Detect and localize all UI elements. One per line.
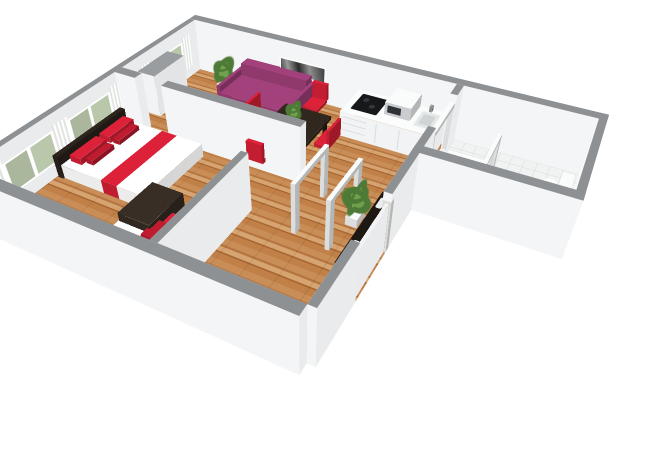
floorplan-render <box>0 0 650 450</box>
drawer-seam <box>342 122 366 130</box>
apartment-plan <box>0 64 589 450</box>
door-seam <box>396 130 399 150</box>
door-seam <box>374 124 377 144</box>
microwave-window <box>387 105 401 116</box>
drawer-seam <box>342 129 366 137</box>
